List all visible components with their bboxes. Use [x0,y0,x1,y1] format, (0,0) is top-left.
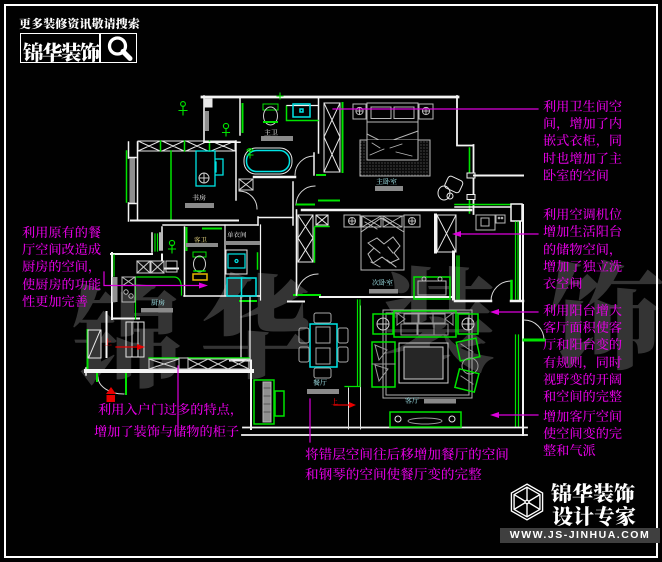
svg-text:厨房: 厨房 [151,298,165,308]
svg-text:主卧室: 主卧室 [376,177,397,187]
svg-text:客卫: 客卫 [194,235,208,244]
svg-text:书房: 书房 [192,193,206,203]
svg-text:上: 上 [104,337,112,348]
svg-text:单衣间: 单衣间 [227,230,247,239]
svg-text:次卧室: 次卧室 [372,278,393,288]
svg-text:餐厅: 餐厅 [313,378,327,388]
svg-text:客厅: 客厅 [405,396,419,406]
svg-text:上: 上 [331,397,338,407]
